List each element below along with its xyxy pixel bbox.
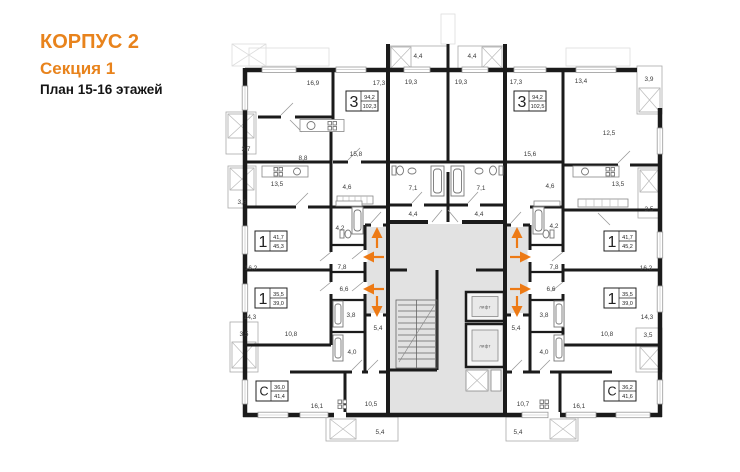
room-area-label: 3,7 bbox=[242, 146, 251, 153]
room-area-label: 5,4 bbox=[512, 325, 521, 332]
room-area-label: 4,4 bbox=[414, 53, 423, 60]
room-area-label: 4,4 bbox=[409, 211, 418, 218]
apartment-info-box: 1 41,7 45,3 bbox=[255, 231, 287, 251]
apartment-info-box: С 36,2 41,6 bbox=[604, 381, 636, 401]
room-area-label: 10,5 bbox=[365, 401, 378, 408]
room-area-label: 4,2 bbox=[550, 223, 559, 230]
room-area-label: 3,5 bbox=[644, 332, 653, 339]
room-area-label: 15,6 bbox=[524, 151, 537, 158]
elevator-label: лифт bbox=[479, 305, 491, 310]
svg-text:102,5: 102,5 bbox=[531, 104, 545, 110]
apartment-info-box: 1 35,5 39,0 bbox=[604, 288, 636, 308]
room-area-label: 13,5 bbox=[612, 181, 625, 188]
svg-text:1: 1 bbox=[259, 234, 268, 251]
apartment-info-box: 1 41,7 45,2 bbox=[604, 231, 636, 251]
room-area-label: 4,0 bbox=[540, 349, 549, 356]
svg-text:41,7: 41,7 bbox=[622, 235, 633, 241]
svg-text:41,7: 41,7 bbox=[273, 235, 284, 241]
elevator-label: лифт bbox=[479, 344, 491, 349]
room-area-label: 3,9 bbox=[645, 76, 654, 83]
svg-text:45,2: 45,2 bbox=[622, 244, 633, 250]
svg-text:39,0: 39,0 bbox=[622, 301, 633, 307]
svg-text:35,5: 35,5 bbox=[622, 292, 633, 298]
room-area-label: 7,8 bbox=[338, 264, 347, 271]
svg-text:1: 1 bbox=[259, 291, 268, 308]
room-area-label: 16,1 bbox=[573, 403, 586, 410]
room-area-label: 8,8 bbox=[299, 155, 308, 162]
apartment-info-box: 3 94,2 102,3 bbox=[346, 91, 378, 111]
room-area-label: 4,4 bbox=[468, 53, 477, 60]
svg-text:41,6: 41,6 bbox=[622, 394, 633, 400]
room-area-label: 10,8 bbox=[601, 331, 614, 338]
svg-text:3: 3 bbox=[350, 94, 359, 111]
svg-text:102,3: 102,3 bbox=[363, 104, 377, 110]
room-area-label: 6,6 bbox=[340, 286, 349, 293]
room-area-label: 4,2 bbox=[336, 225, 345, 232]
room-area-label: 16,2 bbox=[640, 265, 653, 272]
room-area-label: 17,3 bbox=[373, 80, 386, 87]
svg-text:45,3: 45,3 bbox=[273, 244, 284, 250]
room-area-label: 13,4 bbox=[575, 78, 588, 85]
room-area-label: 4,6 bbox=[546, 183, 555, 190]
room-area-label: 10,8 bbox=[285, 331, 298, 338]
room-area-label: 17,3 bbox=[510, 79, 523, 86]
svg-text:94,2: 94,2 bbox=[532, 95, 543, 101]
room-area-label: 3,5 bbox=[240, 331, 249, 338]
room-area-label: 12,5 bbox=[603, 130, 616, 137]
room-area-label: 4,0 bbox=[348, 349, 357, 356]
svg-text:39,0: 39,0 bbox=[273, 301, 284, 307]
room-area-label: 5,4 bbox=[374, 325, 383, 332]
room-area-label: 7,1 bbox=[409, 185, 418, 192]
room-area-label: 13,5 bbox=[271, 181, 284, 188]
svg-text:36,2: 36,2 bbox=[622, 385, 633, 391]
room-area-label: 3,5 bbox=[645, 206, 654, 213]
room-area-label: 7,8 bbox=[550, 264, 559, 271]
elevator-shafts: лифт лифт bbox=[466, 292, 504, 391]
room-area-label: 4,6 bbox=[343, 184, 352, 191]
svg-text:С: С bbox=[607, 385, 616, 399]
svg-text:1: 1 bbox=[608, 291, 617, 308]
room-area-label: 3,6 bbox=[238, 199, 247, 206]
room-area-label: 10,7 bbox=[517, 401, 530, 408]
svg-text:35,5: 35,5 bbox=[273, 292, 284, 298]
svg-text:36,0: 36,0 bbox=[274, 385, 285, 391]
svg-text:1: 1 bbox=[608, 234, 617, 251]
svg-text:94,2: 94,2 bbox=[364, 95, 375, 101]
svg-text:41,4: 41,4 bbox=[274, 394, 285, 400]
room-area-label: 7,1 bbox=[477, 185, 486, 192]
room-area-label: 14,3 bbox=[244, 314, 257, 321]
floor-plan: лифт лифт 16,9 17,3 19,3 19,3 17,3 bbox=[0, 0, 740, 472]
room-area-label: 16,2 bbox=[245, 265, 258, 272]
room-area-label: 19,3 bbox=[455, 79, 468, 86]
room-area-label: 5,4 bbox=[514, 429, 523, 436]
apartment-info-box: С 36,0 41,4 bbox=[256, 381, 288, 401]
room-area-label: 15,8 bbox=[350, 151, 363, 158]
room-area-label: 14,3 bbox=[641, 314, 654, 321]
room-area-label: 6,6 bbox=[547, 286, 556, 293]
apartment-info-box: 3 94,2 102,5 bbox=[514, 91, 546, 111]
page: КОРПУС 2 Секция 1 План 15-16 этажей bbox=[0, 0, 740, 472]
apartment-info-box: 1 35,5 39,0 bbox=[255, 288, 287, 308]
room-area-label: 3,8 bbox=[540, 312, 549, 319]
room-area-label: 19,3 bbox=[405, 79, 418, 86]
room-area-label: 5,4 bbox=[376, 429, 385, 436]
room-area-label: 4,4 bbox=[475, 211, 484, 218]
room-area-label: 16,1 bbox=[311, 403, 324, 410]
svg-text:3: 3 bbox=[518, 94, 527, 111]
room-area-label: 3,8 bbox=[347, 312, 356, 319]
svg-text:С: С bbox=[259, 385, 268, 399]
room-area-label: 16,9 bbox=[307, 80, 320, 87]
